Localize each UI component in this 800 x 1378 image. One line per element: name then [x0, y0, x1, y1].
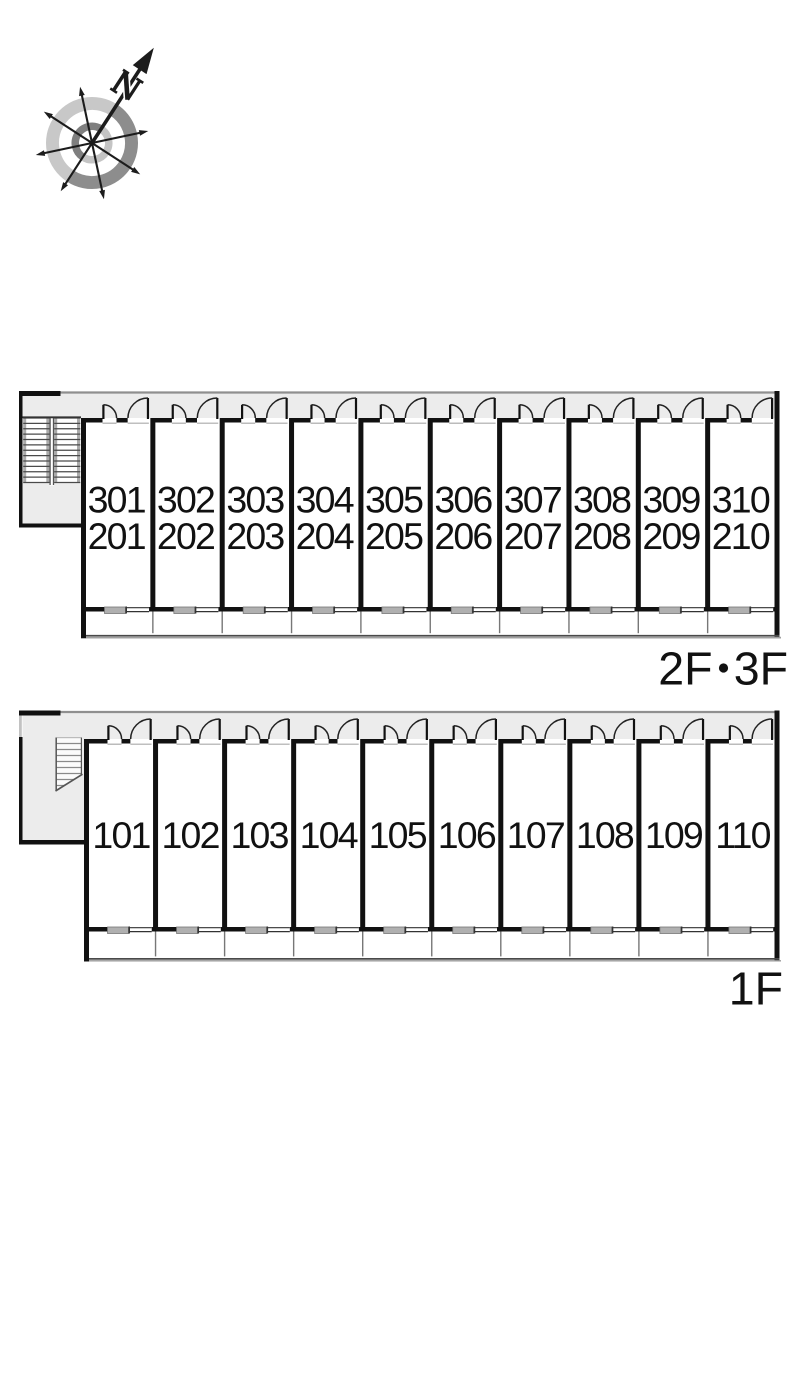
svg-text:102: 102	[162, 814, 219, 856]
svg-text:106: 106	[438, 814, 496, 856]
svg-text:1F: 1F	[729, 963, 783, 1015]
svg-text:105: 105	[369, 814, 427, 856]
svg-text:203: 203	[226, 515, 284, 557]
svg-text:110: 110	[715, 814, 770, 856]
svg-text:202: 202	[157, 515, 214, 557]
svg-text:206: 206	[434, 515, 492, 557]
svg-text:207: 207	[504, 515, 561, 557]
svg-text:101: 101	[92, 814, 150, 856]
svg-text:209: 209	[642, 515, 700, 557]
svg-text:201: 201	[88, 515, 146, 557]
svg-text:108: 108	[576, 814, 634, 856]
svg-text:107: 107	[507, 814, 564, 856]
svg-text:205: 205	[365, 515, 423, 557]
svg-text:2F: 2F	[658, 643, 712, 695]
svg-text:109: 109	[645, 814, 703, 856]
svg-text:104: 104	[300, 814, 358, 856]
svg-text:208: 208	[573, 515, 631, 557]
svg-text:210: 210	[712, 515, 770, 557]
svg-text:3F: 3F	[734, 643, 788, 695]
svg-text:103: 103	[231, 814, 289, 856]
svg-text:204: 204	[296, 515, 354, 557]
